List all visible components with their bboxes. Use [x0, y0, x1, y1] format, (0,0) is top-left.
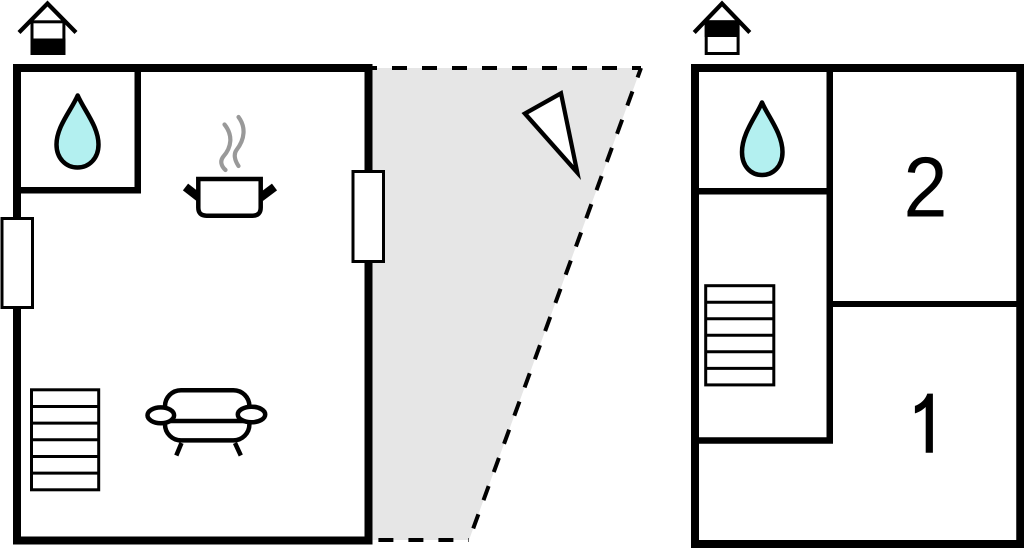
- svg-text:2: 2: [904, 141, 948, 235]
